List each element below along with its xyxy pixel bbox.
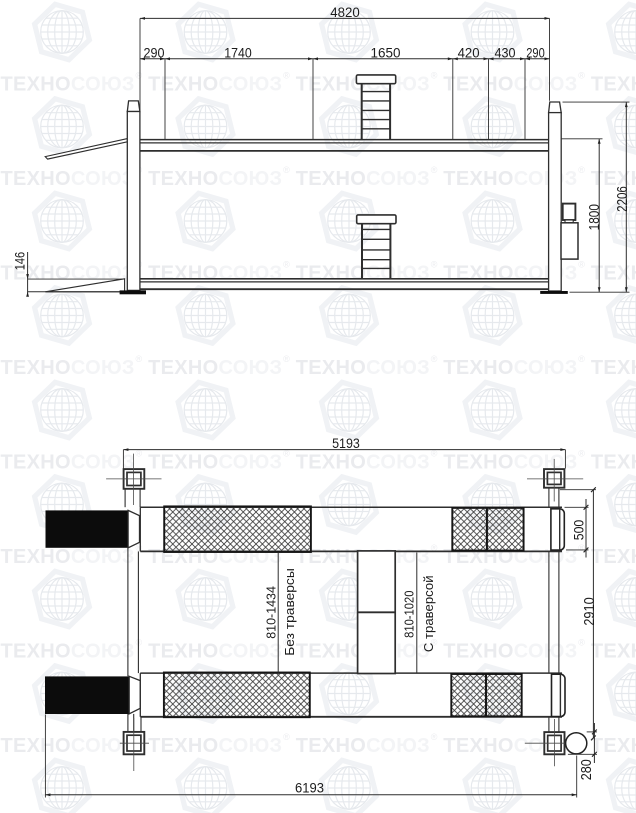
svg-text:2206: 2206 <box>614 186 631 212</box>
svg-text:®: ® <box>283 732 290 742</box>
svg-text:ТЕХНОСОЮЗ: ТЕХНОСОЮЗ <box>591 73 636 95</box>
svg-text:®: ® <box>431 354 438 364</box>
svg-text:ТЕХНОСОЮЗ: ТЕХНОСОЮЗ <box>148 735 282 757</box>
svg-text:®: ® <box>283 354 290 364</box>
svg-text:290: 290 <box>526 45 545 60</box>
svg-text:ТЕХНОСОЮЗ: ТЕХНОСОЮЗ <box>148 357 282 379</box>
svg-text:®: ® <box>431 732 438 742</box>
svg-text:ТЕХНОСОЮЗ: ТЕХНОСОЮЗ <box>148 640 282 662</box>
svg-text:®: ® <box>578 70 585 80</box>
svg-text:146: 146 <box>11 252 27 271</box>
svg-text:ТЕХНОСОЮЗ: ТЕХНОСОЮЗ <box>591 357 636 379</box>
svg-text:1800: 1800 <box>586 204 603 230</box>
svg-text:®: ® <box>136 637 143 647</box>
svg-text:420: 420 <box>458 45 480 60</box>
svg-text:ТЕХНОСОЮЗ: ТЕХНОСОЮЗ <box>296 357 430 379</box>
svg-text:ТЕХНОСОЮЗ: ТЕХНОСОЮЗ <box>296 735 430 757</box>
svg-text:®: ® <box>578 448 585 458</box>
svg-text:ТЕХНОСОЮЗ: ТЕХНОСОЮЗ <box>591 546 636 568</box>
svg-text:®: ® <box>578 354 585 364</box>
svg-text:ТЕХНОСОЮЗ: ТЕХНОСОЮЗ <box>1 640 135 662</box>
svg-text:ТЕХНОСОЮЗ: ТЕХНОСОЮЗ <box>443 640 577 662</box>
svg-text:500: 500 <box>571 520 587 541</box>
svg-text:ТЕХНОСОЮЗ: ТЕХНОСОЮЗ <box>148 451 282 473</box>
svg-text:1650: 1650 <box>371 45 401 60</box>
svg-text:®: ® <box>578 165 585 175</box>
svg-text:ТЕХНОСОЮЗ: ТЕХНОСОЮЗ <box>148 168 282 190</box>
svg-text:ТЕХНОСОЮЗ: ТЕХНОСОЮЗ <box>443 357 577 379</box>
svg-text:810-1434: 810-1434 <box>264 586 279 639</box>
svg-text:®: ® <box>136 70 143 80</box>
svg-text:ТЕХНОСОЮЗ: ТЕХНОСОЮЗ <box>296 168 430 190</box>
svg-text:ТЕХНОСОЮЗ: ТЕХНОСОЮЗ <box>1 73 135 95</box>
svg-text:ТЕХНОСОЮЗ: ТЕХНОСОЮЗ <box>296 451 430 473</box>
svg-text:®: ® <box>283 165 290 175</box>
svg-text:4820: 4820 <box>330 5 360 20</box>
svg-text:ТЕХНОСОЮЗ: ТЕХНОСОЮЗ <box>443 73 577 95</box>
svg-text:ТЕХНОСОЮЗ: ТЕХНОСОЮЗ <box>591 262 636 284</box>
svg-text:290: 290 <box>144 45 165 60</box>
svg-text:2910: 2910 <box>581 597 598 625</box>
svg-text:5193: 5193 <box>332 436 360 451</box>
svg-text:®: ® <box>431 259 438 269</box>
svg-text:®: ® <box>431 165 438 175</box>
svg-text:ТЕХНОСОЮЗ: ТЕХНОСОЮЗ <box>591 451 636 473</box>
svg-text:®: ® <box>136 354 143 364</box>
svg-text:ТЕХНОСОЮЗ: ТЕХНОСОЮЗ <box>1 735 135 757</box>
svg-text:®: ® <box>578 259 585 269</box>
svg-text:430: 430 <box>495 45 516 60</box>
svg-text:®: ® <box>283 70 290 80</box>
svg-text:810-1020: 810-1020 <box>402 591 417 638</box>
svg-text:1740: 1740 <box>224 45 252 60</box>
svg-text:ТЕХНОСОЮЗ: ТЕХНОСОЮЗ <box>1 546 135 568</box>
svg-text:ТЕХНОСОЮЗ: ТЕХНОСОЮЗ <box>1 357 135 379</box>
svg-text:Без траверсы: Без траверсы <box>282 568 297 656</box>
svg-text:ТЕХНОСОЮЗ: ТЕХНОСОЮЗ <box>148 73 282 95</box>
svg-text:С траверсой: С траверсой <box>421 575 436 652</box>
svg-text:®: ® <box>283 259 290 269</box>
svg-text:ТЕХНОСОЮЗ: ТЕХНОСОЮЗ <box>1 451 135 473</box>
svg-text:280: 280 <box>578 759 595 780</box>
svg-text:ТЕХНОСОЮЗ: ТЕХНОСОЮЗ <box>148 262 282 284</box>
svg-text:ТЕХНОСОЮЗ: ТЕХНОСОЮЗ <box>591 640 636 662</box>
svg-text:®: ® <box>578 637 585 647</box>
svg-text:ТЕХНОСОЮЗ: ТЕХНОСОЮЗ <box>1 168 135 190</box>
svg-text:ТЕХНОСОЮЗ: ТЕХНОСОЮЗ <box>591 735 636 757</box>
svg-text:®: ® <box>431 70 438 80</box>
svg-text:6193: 6193 <box>295 780 324 795</box>
